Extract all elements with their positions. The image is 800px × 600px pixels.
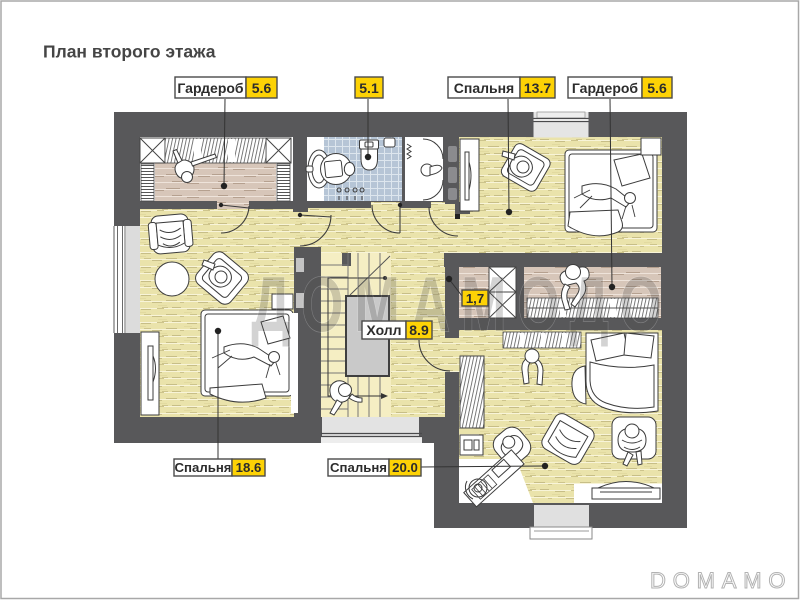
- svg-text:Спальня: Спальня: [330, 460, 387, 475]
- svg-text:8.9: 8.9: [409, 322, 429, 338]
- svg-text:Спальня: Спальня: [454, 80, 514, 96]
- svg-text:Гардероб: Гардероб: [177, 80, 244, 96]
- svg-text:План второго этажа: План второго этажа: [43, 42, 216, 62]
- svg-text:1,7: 1,7: [466, 291, 484, 306]
- svg-text:20.0: 20.0: [392, 460, 418, 475]
- svg-text:Спальня: Спальня: [175, 460, 232, 475]
- svg-text:Холл: Холл: [366, 322, 401, 338]
- svg-text:DOMAMO: DOMAMO: [650, 568, 792, 593]
- svg-text:5.6: 5.6: [252, 80, 272, 96]
- svg-text:5.6: 5.6: [647, 80, 667, 96]
- svg-text:Гардероб: Гардероб: [572, 80, 639, 96]
- svg-text:18.6: 18.6: [236, 460, 262, 475]
- svg-text:5.1: 5.1: [359, 80, 379, 96]
- svg-text:13.7: 13.7: [524, 80, 551, 96]
